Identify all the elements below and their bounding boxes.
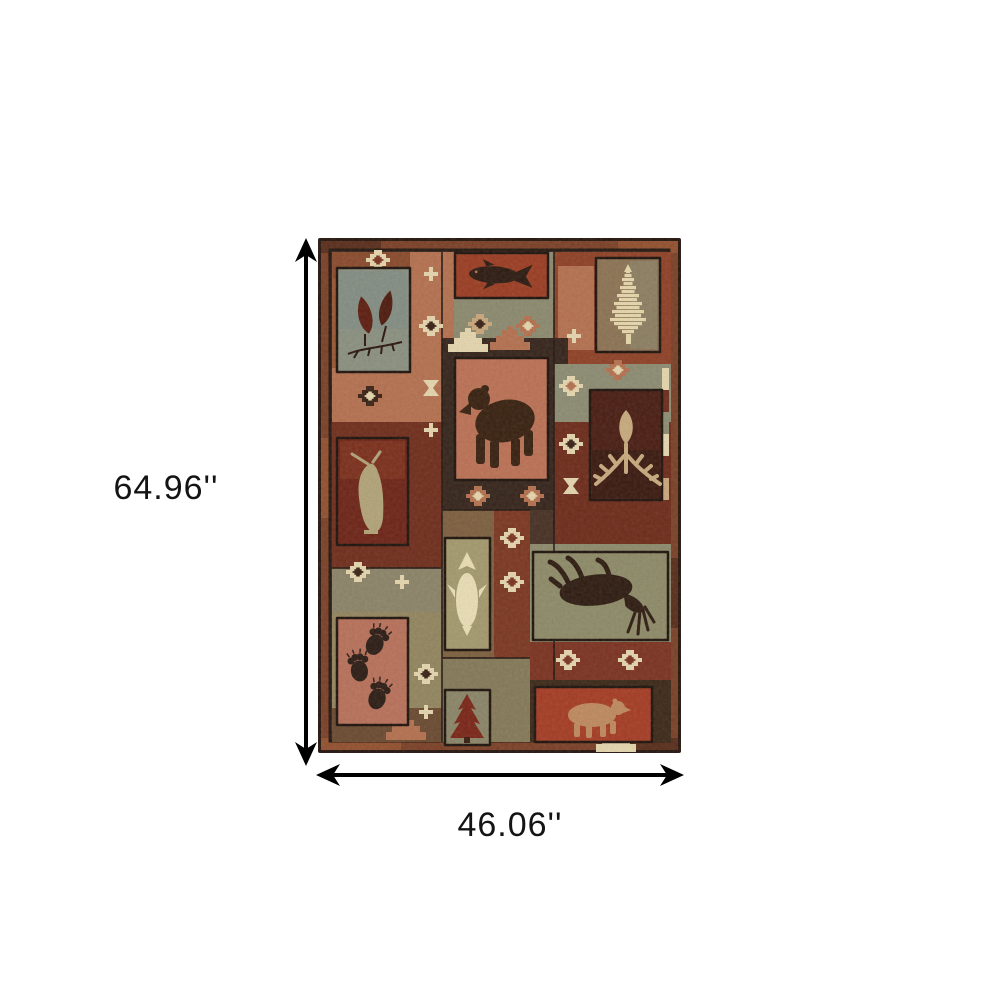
arrowhead-up-icon — [295, 238, 317, 262]
rug-image — [318, 238, 681, 753]
arrowhead-left-icon — [316, 764, 340, 786]
arrowhead-down-icon — [295, 742, 317, 766]
rug-illustration — [318, 238, 681, 753]
width-arrow — [316, 764, 684, 786]
texture-overlay-light — [318, 238, 681, 753]
arrowhead-right-icon — [660, 764, 684, 786]
height-dimension-label: 64.96'' — [81, 471, 251, 505]
height-arrow — [295, 238, 317, 766]
width-dimension-label: 46.06'' — [425, 808, 595, 842]
product-dimension-figure: 64.96'' 46.06'' — [0, 0, 1000, 1000]
